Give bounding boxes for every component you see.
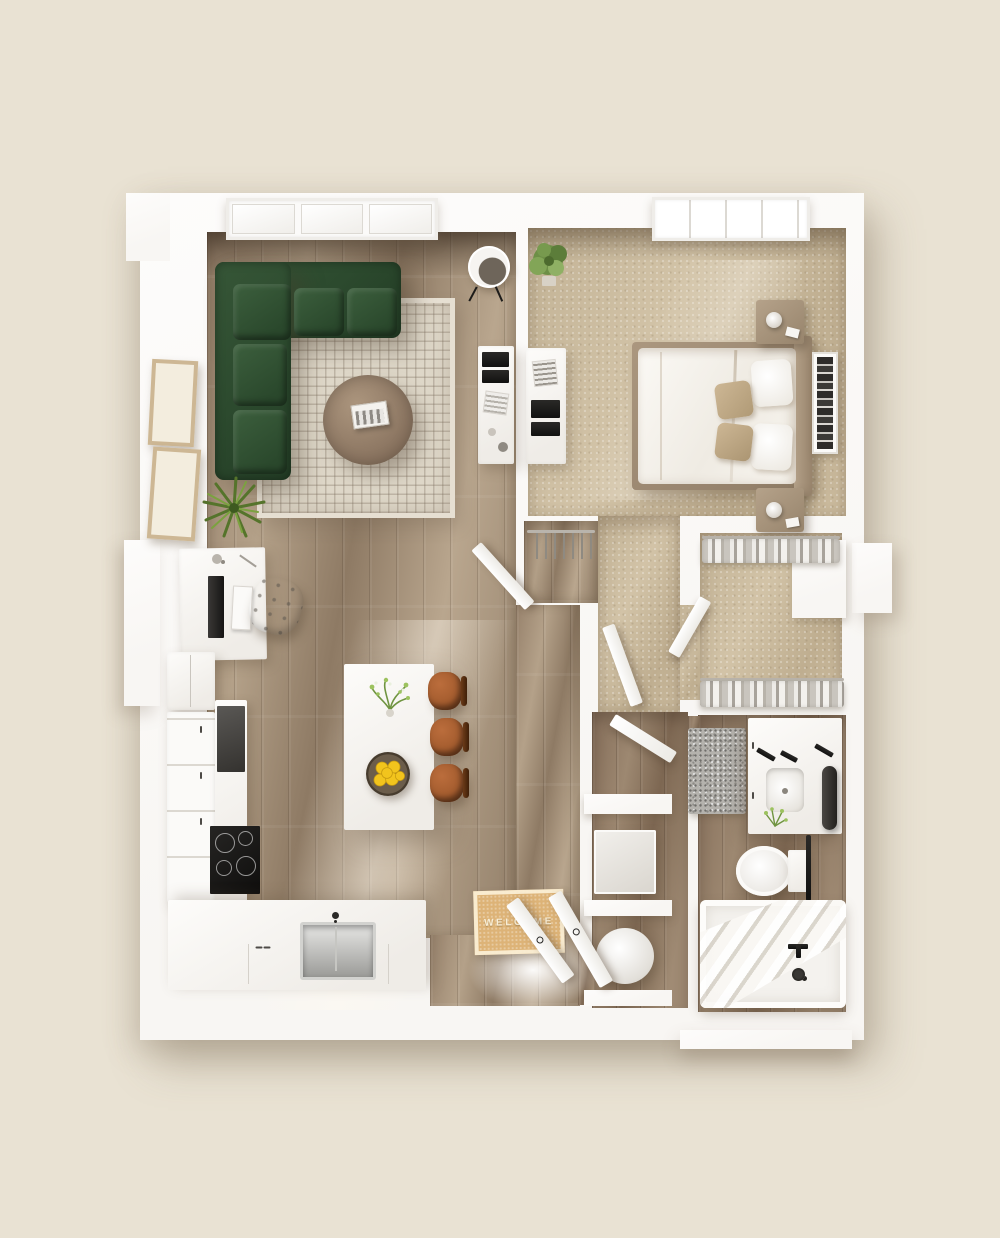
vanity-handle	[752, 792, 754, 799]
nightstand-top	[756, 300, 804, 344]
counter-run-bottom	[168, 900, 426, 990]
nightstand-bottom	[756, 488, 804, 532]
wall-frame-lower	[147, 446, 201, 541]
tv-bedroom	[531, 400, 560, 418]
toilet-tank	[788, 850, 808, 892]
bed-pillow-tan	[714, 422, 754, 462]
floor-plant-palm-icon	[198, 472, 270, 544]
tub-faucet-stem	[796, 944, 801, 958]
outer-wall-bump-left	[124, 540, 160, 706]
hanging-clothes-bottom	[700, 681, 844, 707]
washer	[594, 830, 656, 894]
window-pane	[369, 204, 432, 234]
laundry-shelf-top	[584, 794, 672, 814]
bar-stool	[428, 672, 462, 710]
door-handle	[571, 927, 581, 937]
bathtub	[700, 900, 846, 1008]
window-pane	[232, 204, 295, 234]
towel-cylinder	[822, 766, 837, 830]
drawer-handle	[256, 947, 263, 949]
duvet-fold	[660, 352, 662, 480]
tv-bedroom-base	[531, 422, 560, 436]
bedroom-wall-art	[812, 352, 838, 454]
sink-divider	[335, 927, 337, 971]
tall-cabinet-column	[167, 712, 215, 902]
sofa-cushion	[294, 288, 344, 336]
burner	[216, 860, 232, 876]
towel-bar	[806, 835, 811, 901]
outer-wall-bump-right	[852, 543, 892, 613]
notepad	[785, 327, 800, 339]
outer-wall-notch-top-left	[126, 193, 170, 261]
art-print	[817, 357, 833, 449]
hanging-clothes-top	[702, 539, 840, 563]
bedroom-window	[652, 197, 810, 241]
door-handle	[535, 935, 545, 945]
stool-back	[463, 722, 469, 752]
dresser-decor	[532, 359, 559, 387]
bed-pillow-white	[750, 359, 793, 408]
bedroom-plant-icon	[518, 234, 582, 298]
hangers	[529, 533, 593, 559]
cabinet-handle	[200, 818, 202, 825]
tv-living	[482, 352, 509, 367]
console-decor-dot	[498, 442, 508, 452]
table-lamp	[766, 502, 782, 518]
toilet-bowl	[736, 846, 792, 896]
desk-lamp	[212, 554, 222, 564]
stool-back	[463, 768, 469, 798]
island-flower-vase-icon	[362, 672, 418, 728]
floor-plan-render: WELCOME	[0, 0, 1000, 1238]
tv-living-speaker	[482, 370, 509, 383]
bed-pillow-white	[751, 423, 793, 471]
glass-cabinet	[217, 706, 245, 772]
shower-curtain	[700, 900, 846, 1008]
counter-door-seam	[388, 944, 389, 984]
kitchen-faucet	[332, 912, 339, 919]
magazine	[355, 409, 384, 426]
laundry-shelf-bottom	[584, 990, 672, 1006]
refrigerator	[167, 652, 215, 710]
tub-drain-knob	[792, 968, 805, 981]
notepad	[785, 517, 799, 528]
cabinet-handle	[200, 726, 202, 733]
lemons-icon	[370, 756, 406, 792]
fridge-door-seam	[190, 655, 191, 707]
bar-stool	[430, 718, 464, 756]
burner	[238, 831, 253, 846]
sofa-cushion	[233, 344, 287, 406]
console-decor-magazine	[483, 390, 510, 415]
cabinet-handle	[200, 772, 202, 779]
vanity-handle	[752, 742, 754, 749]
burner	[215, 833, 235, 853]
bed-pillow-tan	[714, 380, 755, 421]
bath-mat	[688, 728, 746, 814]
kitchen-sink	[300, 922, 376, 980]
laptop	[208, 576, 224, 638]
counter-door-seam	[248, 944, 249, 984]
console-decor-dot	[488, 428, 496, 436]
outer-wall-step-bathroom	[680, 1030, 852, 1049]
lemon-bowl	[366, 752, 410, 796]
burner	[236, 856, 256, 876]
table-lamp	[766, 312, 782, 328]
vanity-drain	[782, 788, 788, 794]
window-pane	[301, 204, 364, 234]
stool-back	[461, 676, 467, 706]
sofa-cushion	[347, 288, 397, 336]
living-room-window	[226, 198, 438, 240]
wall-frame-upper	[148, 359, 198, 447]
cooktop	[210, 826, 260, 894]
sofa-cushion	[233, 410, 287, 474]
bed-headboard	[794, 336, 812, 496]
bedroom-hall-carpet	[598, 516, 680, 712]
bar-stool	[430, 764, 464, 802]
laundry-shelf-middle	[584, 900, 672, 916]
vanity-plant-icon	[758, 800, 792, 834]
sofa-cushion-corner	[233, 284, 291, 340]
side-table	[468, 246, 510, 288]
drawer-handle	[264, 947, 271, 949]
